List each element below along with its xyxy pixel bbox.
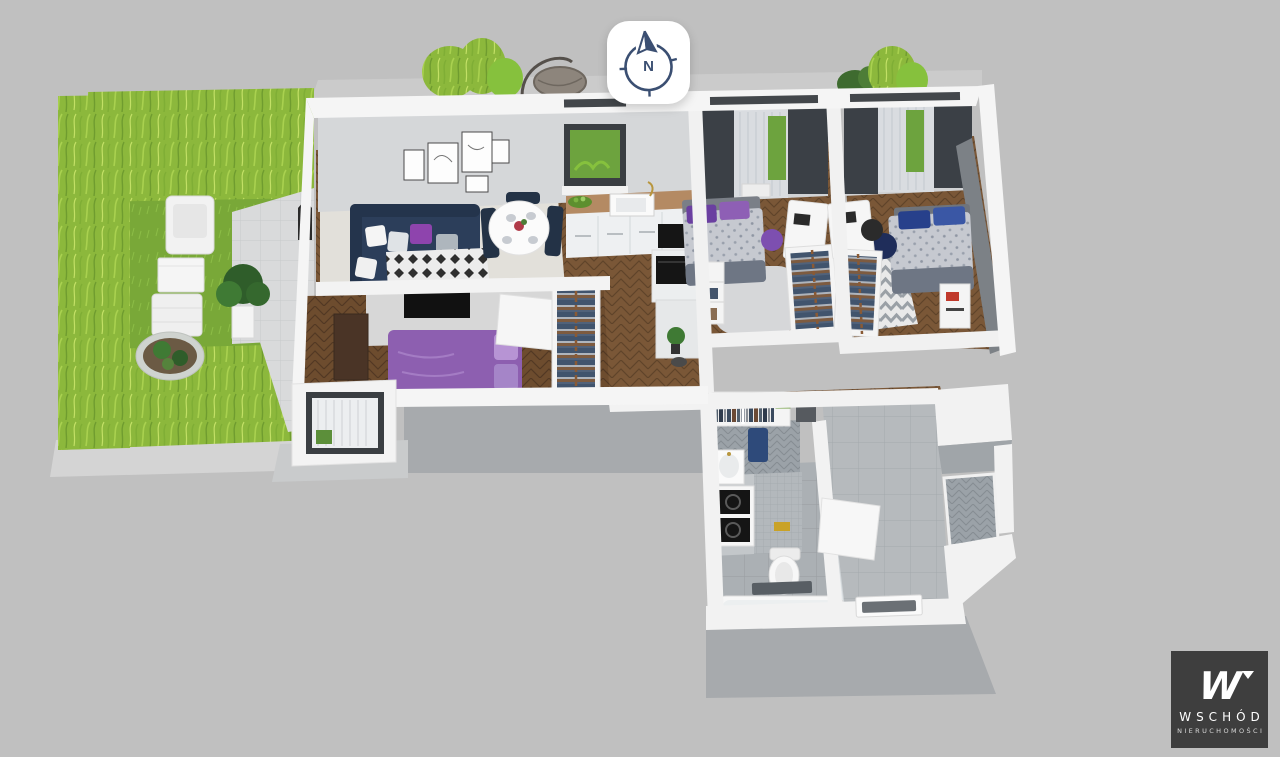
- gold-flush-plate: [774, 522, 790, 531]
- brand-logo: W WSCHÓD NIERUCHOMOŚCI: [1171, 651, 1268, 748]
- bedroom3-window-wall: [844, 94, 972, 196]
- pillow-white-2: [354, 256, 377, 279]
- towel: [748, 428, 768, 462]
- master-open-wardrobe: [552, 282, 600, 394]
- dresser: [334, 314, 368, 380]
- outdoor-bench: [152, 294, 202, 336]
- balcony-plant: [316, 430, 332, 444]
- logo-mark-wrap: W: [1199, 665, 1241, 707]
- master-pillow: [494, 364, 518, 390]
- logo-tagline: NIERUCHOMOŚCI: [1175, 727, 1265, 735]
- bedroom3-chair: [861, 219, 883, 241]
- pillow-gray: [387, 231, 409, 253]
- flower-bed: [136, 332, 204, 380]
- east-niche: [944, 474, 998, 546]
- nightstand: [940, 284, 970, 328]
- bathroom-door-open: [818, 498, 880, 560]
- logo-accent-triangle: [1242, 671, 1254, 679]
- compass-north-label: N: [607, 58, 690, 75]
- bed2-pillow-violet: [719, 201, 750, 221]
- bed3-pillow-navy: [898, 210, 931, 230]
- fruit-bowl: [568, 196, 592, 208]
- entrance: [856, 595, 923, 617]
- bath-mat: [752, 581, 812, 595]
- compass-badge: N: [607, 21, 690, 104]
- master-balcony-door: [272, 380, 408, 482]
- doormat: [862, 600, 916, 613]
- floorplan-3d-scene: [0, 0, 1280, 757]
- bedroom2-window-wall: [700, 100, 828, 202]
- master-door-open: [496, 294, 556, 350]
- living-window: [562, 124, 628, 195]
- pillow-purple: [410, 224, 432, 244]
- bed3-pillow-blue: [933, 206, 966, 226]
- mosaic-wall: [754, 472, 802, 554]
- bedroom2-open-wardrobe: [785, 244, 839, 335]
- logo-brand-name: WSCHÓD: [1174, 710, 1265, 724]
- bedroom2-chair: [761, 229, 783, 251]
- outdoor-table: [158, 258, 204, 292]
- pillow-white: [365, 225, 388, 248]
- garden-terrace: [50, 88, 314, 477]
- logo-w-mark: W: [1193, 665, 1245, 707]
- outdoor-armchair: [166, 196, 214, 254]
- floorplan-render: N W WSCHÓD NIERUCHOMOŚCI: [0, 0, 1280, 757]
